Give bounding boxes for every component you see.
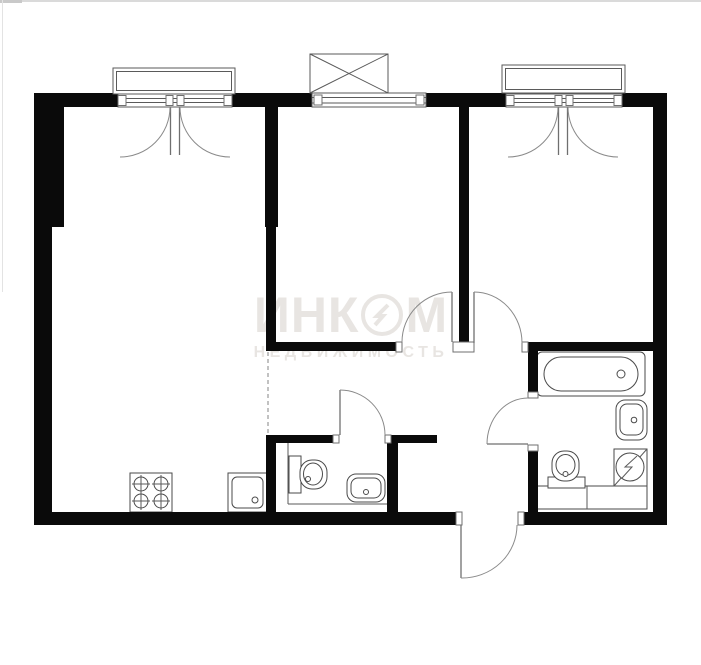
door-entrance — [461, 525, 517, 578]
floor-plan-image: ИНК М НЕДВИЖИМОСТЬ — [0, 0, 701, 665]
door-wc — [340, 390, 385, 435]
bathtub-icon — [537, 352, 645, 396]
bathroom-counter — [537, 486, 647, 509]
door-bathroom — [487, 398, 528, 444]
floor-plan-drawing — [0, 0, 701, 665]
bath-sink-icon — [616, 400, 647, 440]
water-heater-icon — [614, 449, 647, 486]
bath-toilet-icon — [548, 451, 585, 488]
wc-sink-icon — [347, 474, 385, 502]
stove-icon — [130, 473, 172, 512]
kitchen-sink-icon — [228, 473, 267, 512]
door-room-middle — [402, 292, 452, 342]
wc-toilet-icon — [289, 456, 327, 493]
window-right — [502, 65, 625, 157]
door-room-right — [474, 292, 522, 343]
interior-walls — [265, 107, 653, 512]
window-middle — [312, 93, 426, 107]
balcony-crossed-box-icon — [310, 54, 388, 93]
window-left — [113, 68, 235, 157]
